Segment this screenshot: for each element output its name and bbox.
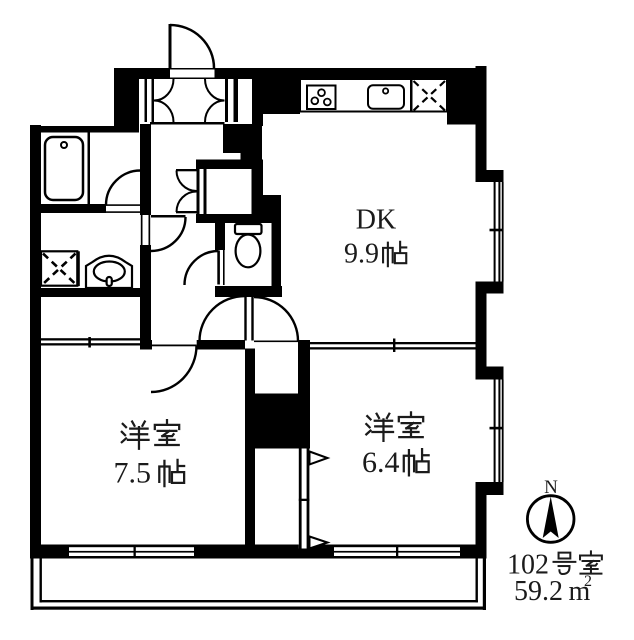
svg-text:2: 2 xyxy=(584,573,592,590)
svg-text:DK: DK xyxy=(356,205,396,236)
svg-text:9.9: 9.9 xyxy=(344,239,379,270)
svg-text:N: N xyxy=(544,477,558,498)
svg-text:59.2: 59.2 xyxy=(514,576,563,607)
svg-text:6.4: 6.4 xyxy=(362,446,400,479)
svg-text:7.5: 7.5 xyxy=(114,457,152,490)
